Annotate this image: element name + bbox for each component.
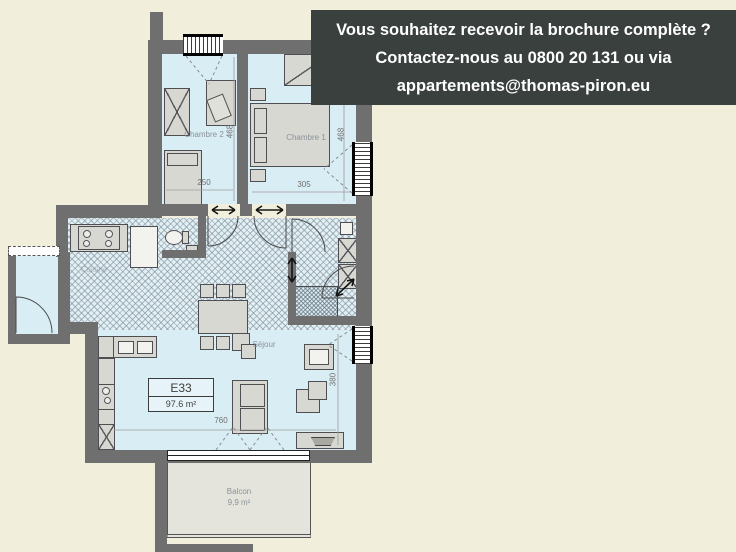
dim-chambre1-width: 305 xyxy=(290,180,318,189)
balcony-name: Balcon xyxy=(167,486,311,497)
sofa xyxy=(232,380,268,434)
balcony-sliding-door xyxy=(167,450,310,461)
dining-chair xyxy=(216,336,230,350)
kitchen-stove xyxy=(78,226,120,250)
sejour-window xyxy=(352,326,373,364)
unit-area: 97.6 m² xyxy=(149,397,213,411)
burner-icon xyxy=(83,240,90,247)
wall-segment xyxy=(288,252,296,318)
wall-segment xyxy=(162,250,206,258)
burner-icon xyxy=(83,230,91,238)
dim-sejour-width: 760 xyxy=(206,416,236,425)
tv-icon xyxy=(311,437,335,446)
wall-segment xyxy=(155,544,253,552)
bed-pillow xyxy=(167,153,198,166)
wall-segment xyxy=(148,40,162,218)
dim-chambre1-depth: 468 xyxy=(337,123,346,147)
wall-segment xyxy=(8,246,16,344)
balcony-label: Balcon 9,9 m² xyxy=(167,486,311,508)
dim-sejour-depth: 380 xyxy=(329,368,338,392)
balcony-area: 9,9 m² xyxy=(167,497,311,508)
kitchen-unit xyxy=(98,424,115,450)
floorplan-page: Chambre 2 Chambre 1 Séjour Cuisine 250 3… xyxy=(0,0,736,552)
wall-segment xyxy=(237,54,248,204)
burner-icon xyxy=(102,387,110,395)
chambre1-label: Chambre 1 xyxy=(274,133,338,142)
kitchen-counter-corner xyxy=(98,336,114,358)
kitchen-sink-unit xyxy=(113,336,157,358)
bed-pillow xyxy=(254,137,267,163)
unit-id-box: E33 97.6 m² xyxy=(148,378,214,412)
banner-line-2: Contactez-nous au 0800 20 131 ou via xyxy=(311,44,736,72)
armchair-seat xyxy=(309,349,329,365)
dryer xyxy=(338,264,358,289)
storage-room-floor xyxy=(16,256,58,334)
chambre2-window xyxy=(183,34,223,56)
dining-table xyxy=(198,300,248,334)
wall-segment xyxy=(162,204,208,216)
armchair xyxy=(304,344,334,370)
wall-segment xyxy=(286,204,356,216)
burner-icon xyxy=(104,397,111,404)
toilet-tank xyxy=(182,231,189,244)
bath-cabinet xyxy=(340,222,353,235)
chambre1-window xyxy=(352,142,373,196)
dining-chair xyxy=(200,284,214,298)
shower xyxy=(294,286,338,318)
sink-basin xyxy=(137,341,153,354)
cuisine-label: Cuisine xyxy=(70,265,118,274)
unit-code: E33 xyxy=(149,379,213,397)
dining-chair xyxy=(216,284,230,298)
sofa-cushion xyxy=(240,408,265,431)
chambre1-nightstand xyxy=(250,88,266,101)
sofa-cushion xyxy=(240,384,265,407)
sejour-label: Séjour xyxy=(244,340,284,349)
dining-chair xyxy=(200,336,214,350)
dining-chair xyxy=(232,284,246,298)
dim-chambre2-width: 250 xyxy=(190,178,218,187)
dim-chambre2-depth: 468 xyxy=(226,120,235,144)
contact-banner: Vous souhaitez recevoir la brochure comp… xyxy=(311,10,736,105)
storage-window xyxy=(8,246,60,256)
tv-unit xyxy=(296,432,344,449)
washing-machine xyxy=(338,238,358,263)
wall-segment xyxy=(85,322,98,462)
bed-pillow xyxy=(254,108,267,134)
burner-icon xyxy=(105,240,112,247)
burner-icon xyxy=(105,230,113,238)
banner-line-1: Vous souhaitez recevoir la brochure comp… xyxy=(311,16,736,44)
chambre1-nightstand xyxy=(250,169,266,182)
kitchen-hob xyxy=(98,384,115,410)
wall-segment xyxy=(155,456,167,545)
chambre2-wardrobe xyxy=(164,88,190,136)
wall-segment xyxy=(56,205,162,218)
wall-segment xyxy=(288,316,358,325)
fridge xyxy=(130,226,158,268)
banner-line-3: appartements@thomas-piron.eu xyxy=(311,72,736,100)
coffee-table xyxy=(308,381,327,400)
toilet xyxy=(165,230,183,245)
wall-segment xyxy=(240,204,252,216)
sink-basin xyxy=(118,341,134,354)
